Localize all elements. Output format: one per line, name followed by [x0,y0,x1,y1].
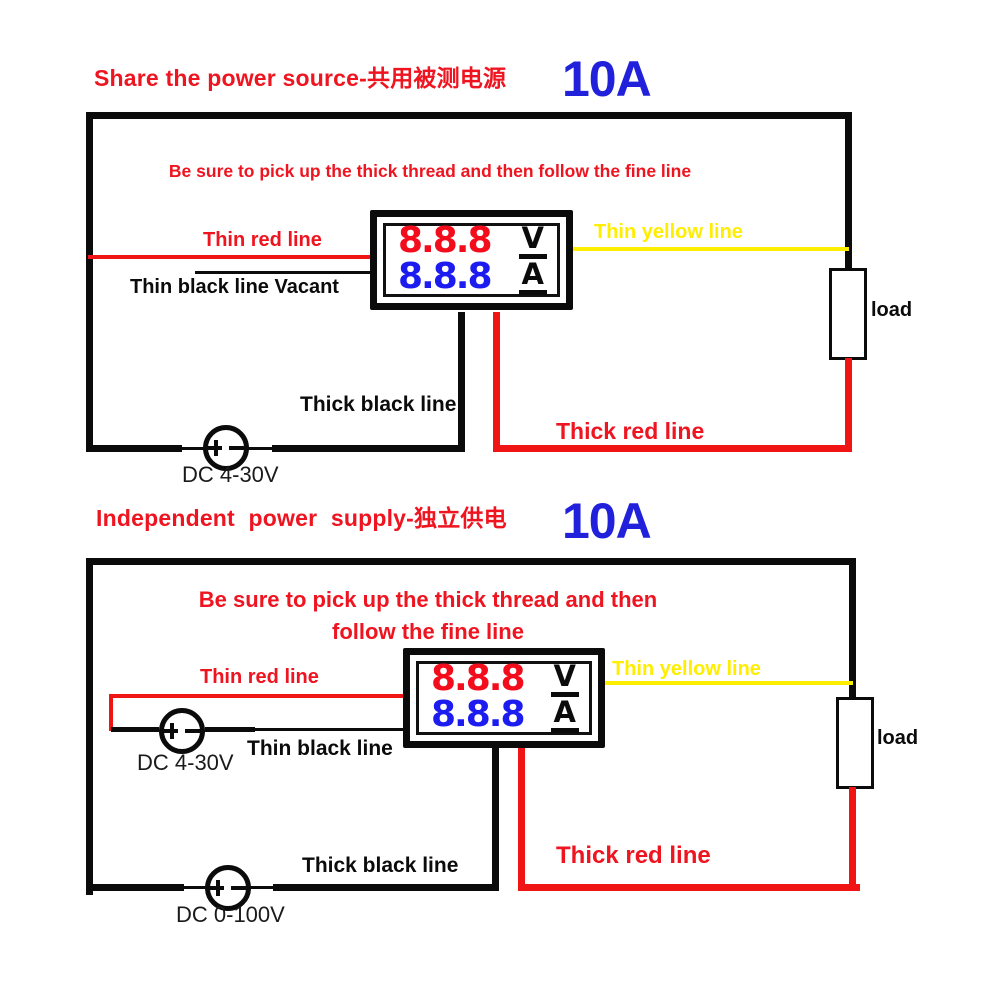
top-load-label: load [871,299,912,321]
top-bottom-wire-thin-right [248,447,272,450]
top-thin-red-label: Thin red line [203,229,322,251]
bottom-bottom-wire-left [86,884,184,891]
top-thick-red-label: Thick red line [556,419,704,444]
bottom-thin-black-wire [255,728,405,731]
top-bottom-wire-left [86,445,182,452]
top-thin-black-label: Thin black line Vacant [130,276,339,298]
plus-icon [214,440,218,456]
bottom-thick-red-label: Thick red line [556,843,711,869]
bottom-thin-red-label: Thin red line [200,666,319,688]
bottom-circuit-right-wire [849,558,856,699]
plus-icon [216,880,220,896]
bottom-voltage-readout: 8.8.8 [431,661,524,697]
bottom-dc-meter-source-label: DC 4-30V [137,751,234,775]
top-warning-text: Be sure to pick up the thick thread and … [130,162,730,181]
bottom-thin-yellow-label: Thin yellow line [612,658,761,680]
top-thick-red-wire-vertical [493,312,500,452]
top-thin-yellow-wire [573,247,849,251]
top-voltage-readout: 8.8.8 [398,223,491,259]
bottom-current-readout: 8.8.8 [431,697,524,733]
top-diagram-title: Share the power source-共用被测电源 [94,66,506,91]
bottom-current-rating: 10A [562,494,651,549]
minus-icon [231,886,247,890]
bottom-thin-black-label: Thin black line [247,737,393,760]
bottom-warning-line2: follow the fine line [128,620,728,644]
bottom-amp-unit: A [551,698,579,733]
top-thick-black-wire-vertical [458,312,465,452]
top-load-resistor [829,268,867,360]
top-volt-unit: V [519,224,547,259]
bottom-warning-line1: Be sure to pick up the thick thread and … [128,588,728,612]
bottom-thick-red-wire-horizontal [518,884,860,891]
bottom-volt-amp-meter: 8.8.8 V 8.8.8 A [403,648,605,748]
bottom-bottom-wire-right [273,884,499,891]
bottom-source-wire-right [205,727,255,732]
bottom-bottom-wire-thin-left [184,886,206,889]
top-bottom-wire-thin-left [182,447,204,450]
bottom-source-wire-left [111,727,159,732]
bottom-load-resistor [836,697,874,789]
bottom-thick-red-wire-to-load [849,787,856,891]
top-circuit-left-wire [86,112,93,452]
top-current-readout: 8.8.8 [398,259,491,295]
top-meter-screen: 8.8.8 V 8.8.8 A [383,223,560,297]
bottom-meter-screen: 8.8.8 V 8.8.8 A [416,661,592,735]
top-thick-black-label: Thick black line [300,393,456,416]
top-thick-red-wire-horizontal [493,445,852,452]
top-thin-yellow-label: Thin yellow line [594,221,743,243]
bottom-circuit-top-wire [86,558,856,565]
top-volt-amp-meter: 8.8.8 V 8.8.8 A [370,210,573,310]
bottom-thick-black-label: Thick black line [302,854,458,877]
top-thick-red-wire-to-load [845,358,852,452]
top-bottom-wire-right [272,445,462,452]
wiring-diagram-page: Share the power source-共用被测电源 10A Be sur… [0,0,1000,1000]
bottom-dc-meter-source-symbol [159,708,205,754]
bottom-circuit-left-wire [86,558,93,895]
top-current-rating: 10A [562,52,651,107]
bottom-dc-main-source-label: DC 0-100V [176,903,285,927]
bottom-load-label: load [877,727,918,749]
plus-icon [170,723,174,739]
top-thin-red-wire [88,255,372,259]
bottom-thin-yellow-wire [605,681,853,685]
bottom-thick-red-wire-vertical [518,748,525,891]
top-dc-source-label: DC 4-30V [182,463,279,487]
bottom-thick-black-wire-vertical [492,748,499,891]
top-thin-black-wire [195,271,372,274]
bottom-bottom-wire-thin-right [250,886,273,889]
top-circuit-top-wire [86,112,852,119]
bottom-diagram-title: Independent power supply-独立供电 [96,506,507,531]
bottom-thin-red-wire-drop [109,694,113,731]
minus-icon [229,446,245,450]
bottom-volt-unit: V [551,662,579,697]
bottom-thin-red-wire [109,694,405,698]
top-amp-unit: A [519,260,547,295]
minus-icon [185,729,201,733]
